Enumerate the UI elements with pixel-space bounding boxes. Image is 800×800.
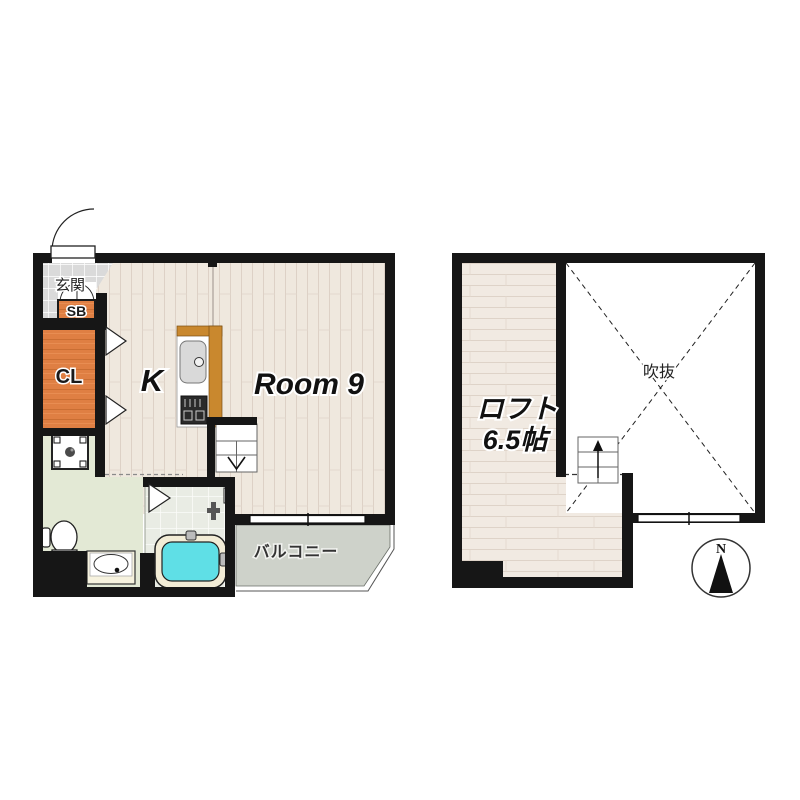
bath-corner-block xyxy=(140,553,155,588)
closet-label: CL xyxy=(56,366,83,388)
wall-tick xyxy=(208,253,217,267)
washing-machine xyxy=(52,435,88,469)
entrance-door-leaf xyxy=(51,246,95,258)
compass-north-label: N xyxy=(716,542,726,557)
loft-window xyxy=(638,512,740,525)
compass: N xyxy=(692,539,750,597)
room9-label: Room 9 xyxy=(254,368,364,401)
floor-plan-drawing: 玄関 SB CL K Room 9 バルコニー xyxy=(0,0,800,800)
stairs-up xyxy=(578,437,618,483)
entrance-door-swing xyxy=(52,209,94,251)
kitchen-counter xyxy=(177,326,222,427)
entrance-label: 玄関 xyxy=(55,277,85,294)
first-floor-plan: 玄関 SB CL K Room 9 バルコニー xyxy=(33,209,395,597)
balcony-label: バルコニー xyxy=(254,543,339,561)
loft-corner-block xyxy=(452,561,503,588)
vanity-sink xyxy=(87,551,135,584)
bathtub xyxy=(155,531,229,588)
kitchen-label: K xyxy=(141,363,166,398)
washer-drain xyxy=(65,447,75,457)
stairs-down xyxy=(216,424,257,472)
void-label: 吹抜 xyxy=(643,363,675,381)
counter-wood-side xyxy=(209,326,222,427)
vanity-drain xyxy=(115,568,120,573)
tub-faucet xyxy=(186,531,196,540)
loft-size-label: 6.5帖 xyxy=(483,425,552,455)
floor-plan-canvas: 玄関 SB CL K Room 9 バルコニー xyxy=(0,0,800,800)
shoe-box-label: SB xyxy=(67,303,86,319)
loft-floor-plan: 吹抜 ロフト 6.5帖 N xyxy=(452,253,765,597)
kitchen-faucet xyxy=(195,358,204,367)
loft-label: ロフト xyxy=(477,394,558,424)
